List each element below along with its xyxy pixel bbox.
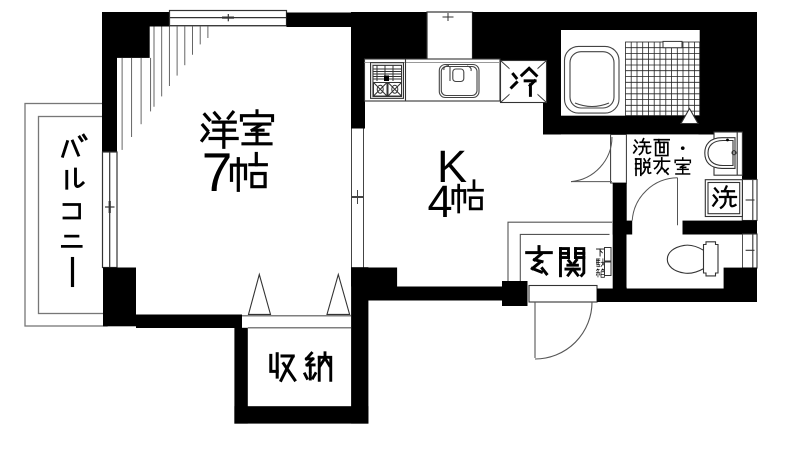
svg-text:7: 7 [202,141,233,203]
svg-text:4: 4 [427,176,452,227]
